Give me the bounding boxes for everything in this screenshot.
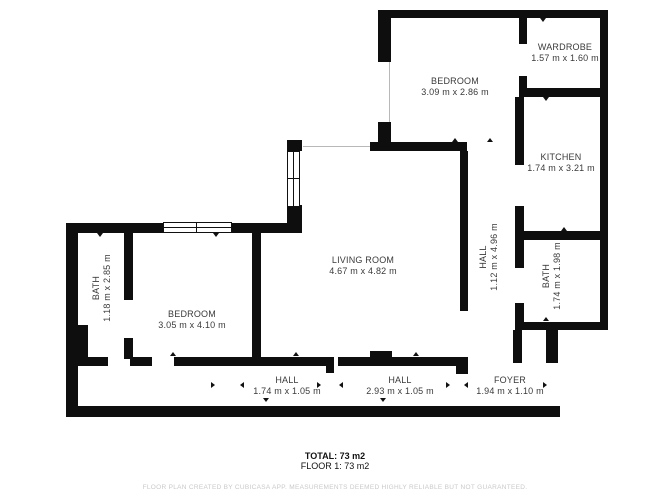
room-label-kitchen: KITCHEN 1.74 m x 3.21 m (527, 152, 595, 174)
door-tick (293, 352, 299, 356)
room-name: BATH (91, 254, 102, 322)
wall (513, 330, 522, 363)
door-tick (97, 233, 103, 237)
door-tick (540, 18, 546, 22)
room-dims: 1.94 m x 1.10 m (476, 386, 544, 397)
wall (370, 142, 467, 151)
room-name: HALL (478, 223, 489, 291)
wall (287, 140, 302, 151)
wall (546, 330, 558, 363)
wall (338, 357, 468, 366)
door-tick (464, 382, 468, 388)
room-dims: 1.18 m x 2.85 m (102, 254, 113, 322)
wall (460, 151, 468, 311)
door-tick (446, 382, 450, 388)
room-dims: 1.74 m x 1.98 m (552, 242, 563, 310)
door-tick (543, 97, 549, 101)
wall (130, 357, 152, 366)
room-name: BEDROOM (421, 76, 489, 87)
room-dims: 3.09 m x 2.86 m (421, 87, 489, 98)
wall (174, 357, 262, 366)
wall (370, 351, 392, 358)
window (287, 151, 300, 207)
room-name: WARDROBE (531, 42, 599, 53)
room-label-bedroom-top: BEDROOM 3.09 m x 2.86 m (421, 76, 489, 98)
wall (378, 10, 391, 62)
wall (515, 97, 524, 165)
wall (66, 357, 108, 366)
wall (66, 406, 560, 417)
door-tick (380, 398, 386, 402)
door-tick (211, 382, 215, 388)
window (163, 222, 232, 233)
wall (326, 357, 334, 373)
wall (124, 233, 133, 300)
room-label-hall-1: HALL 1.74 m x 1.05 m (253, 375, 321, 397)
room-dims: 2.93 m x 1.05 m (366, 386, 434, 397)
room-name: BEDROOM (158, 309, 226, 320)
area-summary: TOTAL: 73 m2 FLOOR 1: 73 m2 (0, 451, 670, 471)
room-label-bath-right: BATH 1.74 m x 1.98 m (541, 242, 563, 310)
room-label-hall-vertical: HALL 1.12 m x 4.96 m (478, 223, 500, 291)
wall (519, 88, 608, 97)
room-dims: 1.57 m x 1.60 m (531, 53, 599, 64)
room-name: HALL (253, 375, 321, 386)
door-tick (213, 233, 219, 237)
wall (124, 338, 133, 359)
door-tick (452, 138, 458, 142)
door-tick (240, 382, 244, 388)
room-dims: 1.12 m x 4.96 m (489, 223, 500, 291)
wall (66, 223, 163, 233)
wall (600, 10, 608, 330)
room-label-bedroom-left: BEDROOM 3.05 m x 4.10 m (158, 309, 226, 331)
room-name: KITCHEN (527, 152, 595, 163)
wall (287, 205, 302, 233)
door-tick (170, 352, 176, 356)
wall (252, 233, 261, 366)
door-tick (339, 382, 343, 388)
watermark-text: FLOOR PLAN CREATED BY CUBICASA APP. MEAS… (0, 484, 670, 491)
door-tick (543, 317, 549, 321)
room-label-hall-2: HALL 2.93 m x 1.05 m (366, 375, 434, 397)
room-dims: 1.74 m x 3.21 m (527, 163, 595, 174)
room-name: FOYER (476, 375, 544, 386)
wall (378, 10, 608, 18)
wall (519, 18, 527, 44)
room-name: HALL (366, 375, 434, 386)
total-area-label: TOTAL: 73 m2 (0, 451, 670, 461)
wall (66, 223, 78, 415)
room-dims: 3.05 m x 4.10 m (158, 320, 226, 331)
room-label-foyer: FOYER 1.94 m x 1.10 m (476, 375, 544, 397)
door-tick (487, 138, 493, 142)
wall (515, 322, 608, 330)
room-dims: 1.74 m x 1.05 m (253, 386, 321, 397)
room-label-living-room: LIVING ROOM 4.67 m x 4.82 m (329, 255, 397, 277)
floor-area-label: FLOOR 1: 73 m2 (0, 461, 670, 471)
door-tick (413, 352, 419, 356)
wall (456, 357, 468, 374)
room-name: LIVING ROOM (329, 255, 397, 266)
room-label-bath-left: BATH 1.18 m x 2.85 m (91, 254, 113, 322)
room-name: BATH (541, 242, 552, 310)
wall (515, 231, 608, 240)
room-dims: 4.67 m x 4.82 m (329, 266, 397, 277)
door-tick (561, 227, 567, 231)
door-tick (263, 398, 269, 402)
wall-opening-line (303, 146, 370, 147)
wall-opening-line (389, 62, 390, 122)
wall (515, 240, 524, 268)
room-label-wardrobe: WARDROBE 1.57 m x 1.60 m (531, 42, 599, 64)
floorplan-canvas: WARDROBE 1.57 m x 1.60 m BEDROOM 3.09 m … (0, 0, 670, 502)
